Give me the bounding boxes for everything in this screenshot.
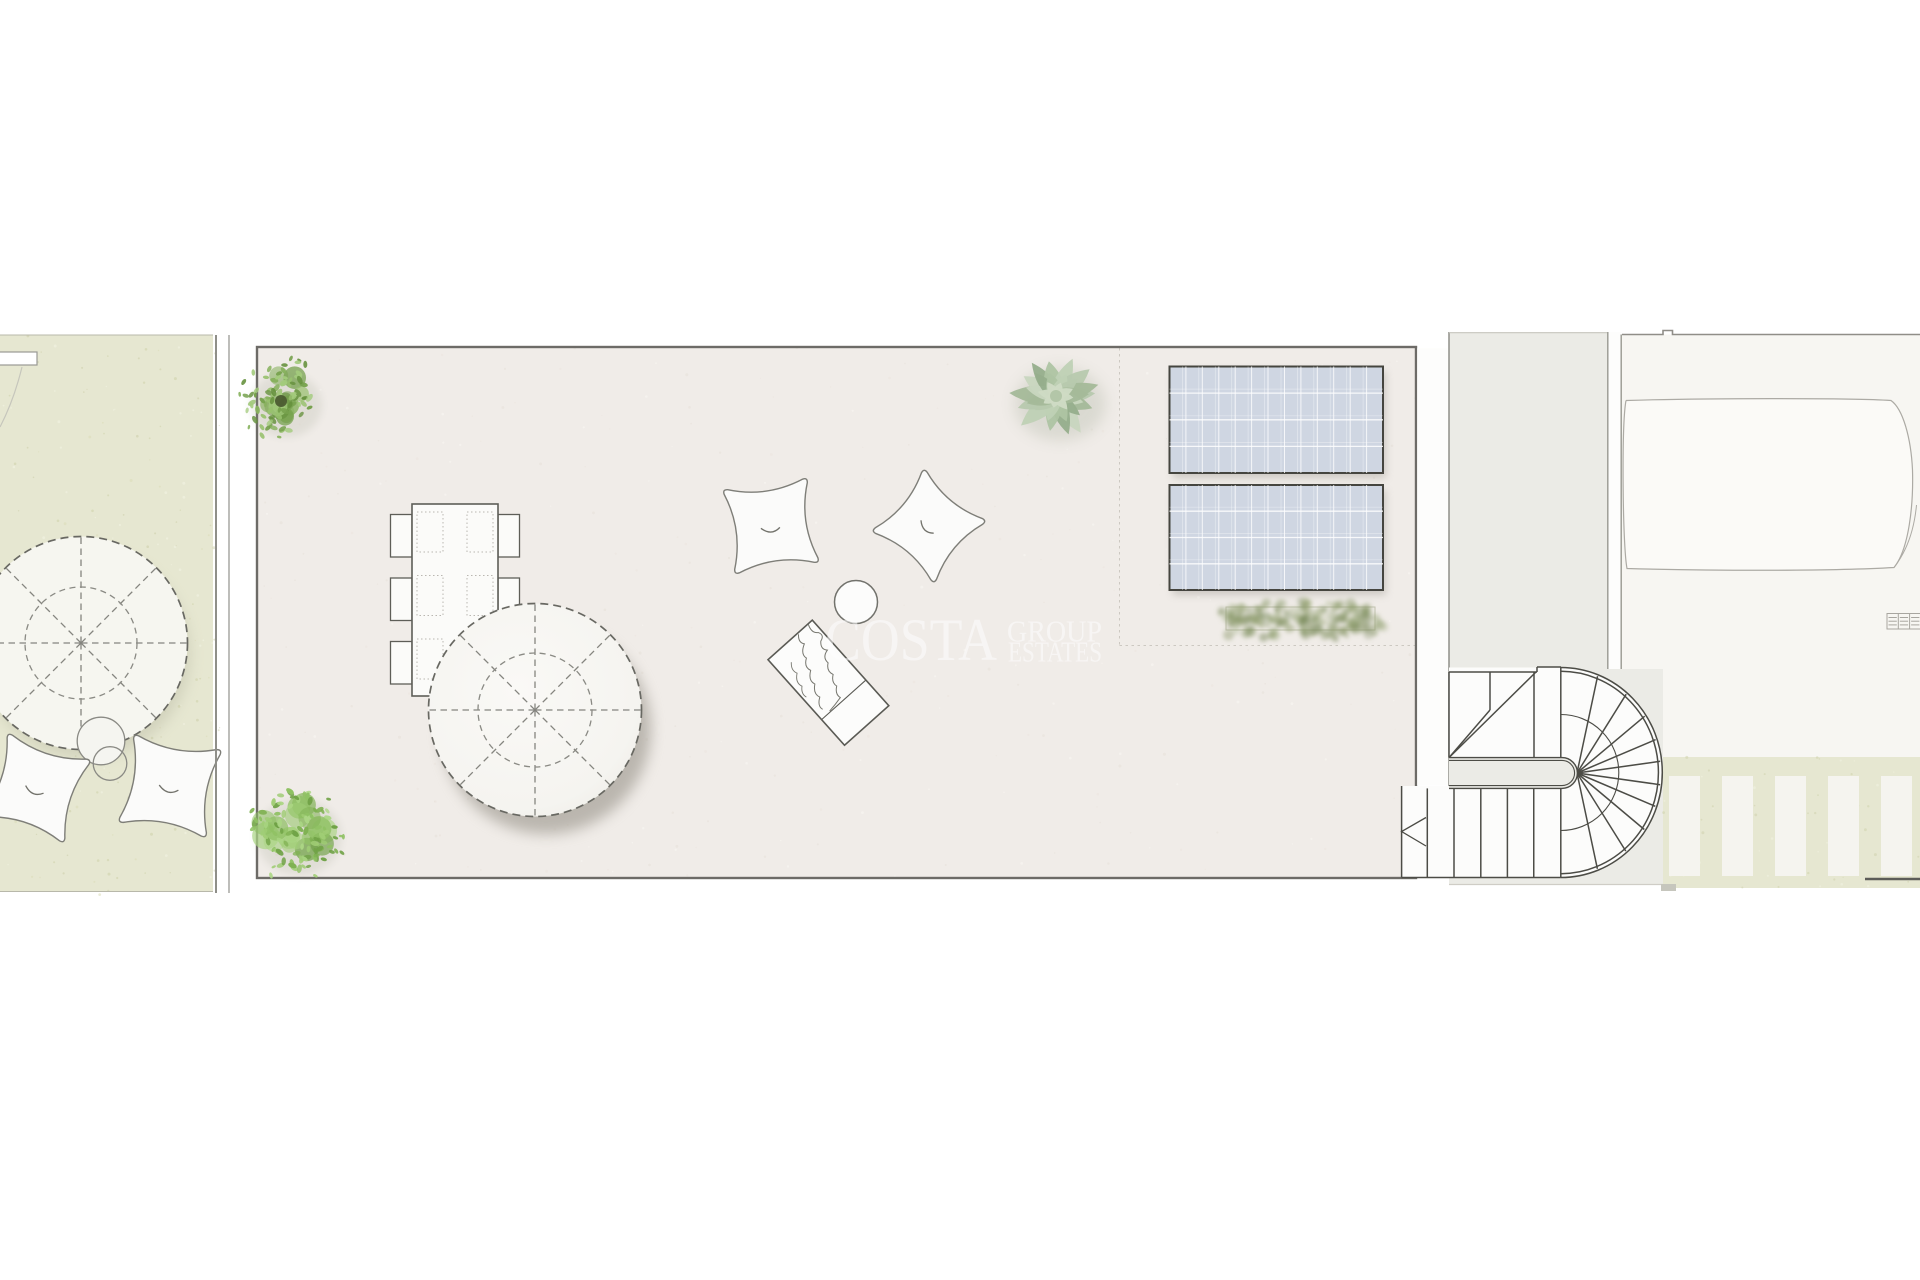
svg-text:COSTA: COSTA: [825, 607, 997, 673]
svg-text:ESTATES: ESTATES: [1008, 637, 1102, 669]
